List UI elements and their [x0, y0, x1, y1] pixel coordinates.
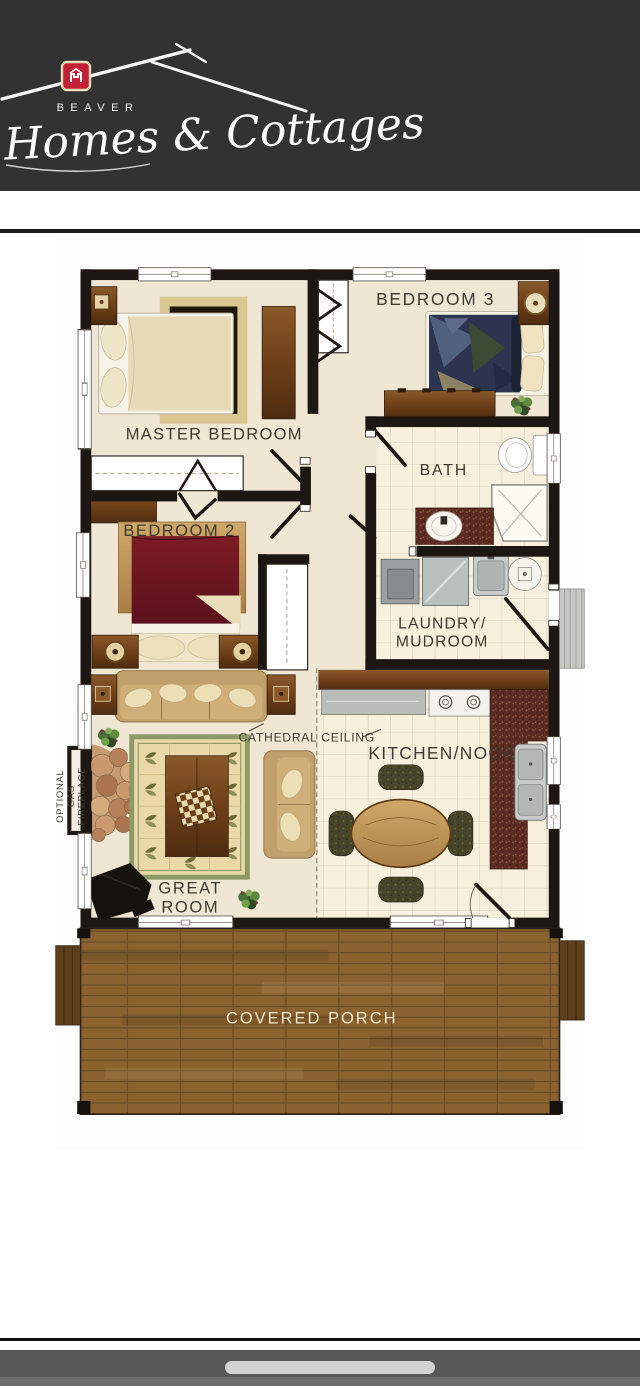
- kitchen-double-sink: [515, 744, 546, 820]
- master-bed: [99, 313, 234, 414]
- bedroom3-label: BEDROOM 3: [376, 289, 495, 309]
- bath-vanity: [416, 508, 494, 544]
- covered-porch-label: COVERED PORCH: [226, 1009, 398, 1027]
- toilet: [498, 435, 548, 475]
- coffee-table: [166, 756, 229, 857]
- svg-text:OPTIONAL: OPTIONAL: [55, 770, 66, 823]
- corner-shower: [492, 485, 547, 541]
- kitchen-counter: [322, 690, 426, 715]
- master-bedroom-label: MASTER BEDROOM: [126, 425, 303, 443]
- bedroom3-dresser: [384, 388, 495, 419]
- bath-label: BATH: [420, 462, 469, 479]
- home-hardware-mark-icon: [62, 62, 90, 90]
- end-table-left: [89, 675, 117, 715]
- laundry-label-line2: MUDROOM: [396, 634, 489, 651]
- bottom-bar-edge: [0, 1377, 640, 1386]
- laundry-label-line1: LAUNDRY/: [398, 616, 486, 633]
- footer-divider-line: [0, 1338, 640, 1341]
- loveseat: [264, 751, 315, 858]
- end-table-right: [267, 675, 295, 715]
- porch-side-step-left: [56, 946, 81, 1025]
- bedroom3-nightstand: [518, 282, 553, 325]
- sofa: [115, 671, 267, 722]
- brand-logo: BEAVER Homes & Cottages: [0, 0, 640, 191]
- svg-text:GAS: GAS: [66, 785, 77, 807]
- screenshot-page: BEAVER Homes & Cottages: [0, 0, 640, 1386]
- porch-side-step-right: [559, 941, 584, 1020]
- bedroom2-label: BEDROOM 2: [123, 522, 235, 540]
- exterior-steps: [559, 589, 584, 668]
- master-dresser: [262, 307, 295, 419]
- bedroom2-nightstand-left: [92, 635, 138, 668]
- cathedral-ceiling-label: CATHEDRAL CEILING: [239, 731, 375, 745]
- roofline-sketch: [2, 44, 306, 111]
- laundry-sink: [474, 553, 509, 596]
- kitchen-upper-cabinets: [318, 670, 548, 690]
- floor-plan-image[interactable]: BEDROOM 3 MASTER BEDROOM BATH BEDROOM 2 …: [0, 233, 640, 1338]
- great-room-label-line1: GREAT: [158, 880, 222, 898]
- master-nightstand: [87, 287, 117, 325]
- floor-plan-svg: BEDROOM 3 MASTER BEDROOM BATH BEDROOM 2 …: [0, 233, 640, 1338]
- stove: [429, 690, 490, 716]
- kitchen-nook-label: KITCHEN/NOOK: [368, 743, 516, 763]
- utility-tub: [508, 558, 541, 591]
- home-indicator[interactable]: [225, 1361, 435, 1374]
- svg-text:FIREPLACE: FIREPLACE: [77, 767, 88, 826]
- brand-header: BEAVER Homes & Cottages: [0, 0, 640, 191]
- great-room-label-line2: ROOM: [161, 899, 219, 917]
